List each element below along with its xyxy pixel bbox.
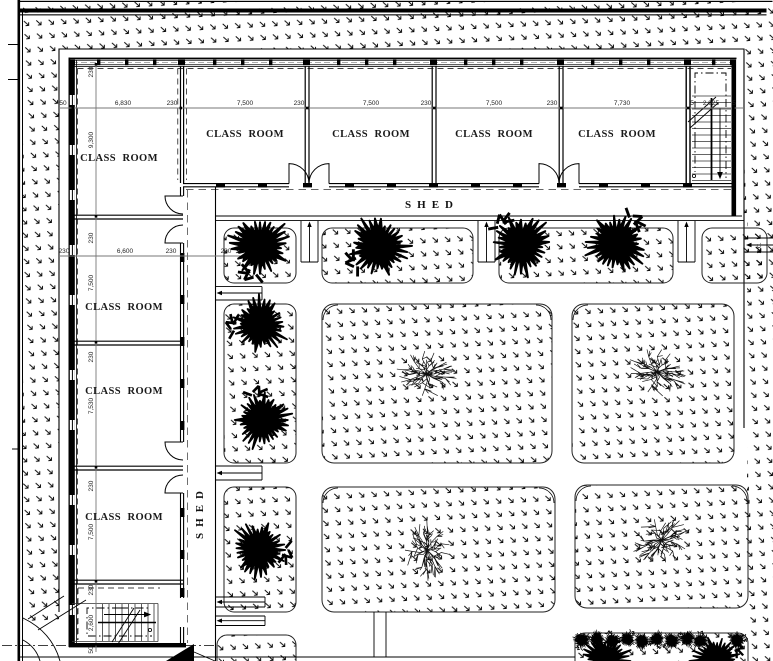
- svg-text:230: 230: [88, 584, 95, 595]
- svg-text:2,925: 2,925: [703, 100, 720, 107]
- svg-text:230: 230: [88, 232, 95, 243]
- svg-text:SHED: SHED: [405, 199, 459, 211]
- svg-text:7,500: 7,500: [363, 100, 380, 107]
- svg-text:R.C.: R.C.: [757, 242, 763, 254]
- svg-text:CLASS ROOM: CLASS ROOM: [206, 129, 284, 140]
- svg-text:CLASS ROOM: CLASS ROOM: [85, 386, 163, 397]
- svg-text:CLASS ROOM: CLASS ROOM: [332, 129, 410, 140]
- svg-text:50: 50: [59, 100, 67, 107]
- svg-text:CLASS ROOM: CLASS ROOM: [85, 512, 163, 523]
- svg-text:CLASS ROOM: CLASS ROOM: [80, 153, 158, 164]
- svg-text:7,500: 7,500: [486, 100, 503, 107]
- svg-text:CLASS ROOM: CLASS ROOM: [455, 129, 533, 140]
- svg-text:230: 230: [88, 351, 95, 362]
- svg-text:50: 50: [88, 646, 95, 654]
- svg-text:CLASS ROOM: CLASS ROOM: [578, 129, 656, 140]
- svg-text:SHED: SHED: [194, 485, 206, 539]
- svg-text:230: 230: [88, 480, 95, 491]
- svg-text:7,730: 7,730: [614, 100, 631, 107]
- svg-text:6,830: 6,830: [115, 100, 132, 107]
- svg-text:5: 5: [732, 100, 736, 107]
- svg-text:230: 230: [421, 100, 432, 107]
- svg-text:230: 230: [166, 248, 177, 255]
- svg-text:7,500: 7,500: [88, 274, 95, 291]
- svg-text:230: 230: [59, 248, 70, 255]
- svg-text:CLASS ROOM: CLASS ROOM: [85, 302, 163, 313]
- svg-text:5: 5: [690, 100, 694, 107]
- svg-text:7,500: 7,500: [237, 100, 254, 107]
- svg-text:2,600: 2,600: [88, 614, 95, 631]
- svg-text:230: 230: [547, 100, 558, 107]
- svg-text:7,500: 7,500: [88, 523, 95, 540]
- svg-text:230: 230: [294, 100, 305, 107]
- svg-text:6,600: 6,600: [117, 248, 134, 255]
- svg-text:9,300: 9,300: [88, 131, 95, 148]
- svg-text:7,530: 7,530: [88, 397, 95, 414]
- svg-text:230: 230: [88, 66, 95, 77]
- svg-text:230: 230: [167, 100, 178, 107]
